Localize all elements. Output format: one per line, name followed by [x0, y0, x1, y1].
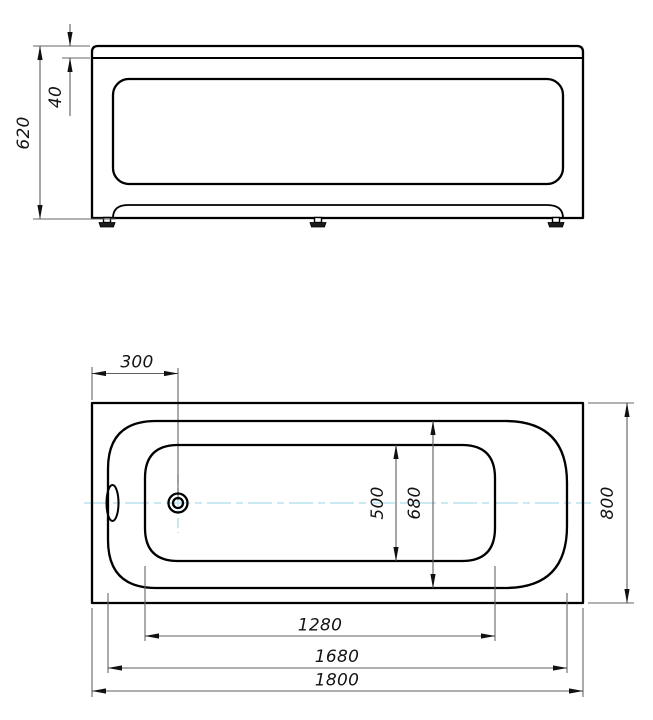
dimension-label-1280: 1280 — [298, 616, 342, 636]
dimension-label-680: 680 — [405, 486, 425, 519]
bathtub-drawing-canvas: 620 40 300 500 — [0, 0, 653, 720]
dimension-overall-height: 620 — [14, 46, 116, 219]
dimension-label-40: 40 — [46, 86, 66, 108]
dimension-drain-offset: 300 — [92, 353, 178, 401]
dimension-label-620: 620 — [14, 116, 34, 149]
dimension-rim-height: 40 — [46, 24, 90, 116]
tub-front-outline — [92, 46, 583, 218]
dimension-label-800: 800 — [598, 486, 618, 519]
dimension-label-300: 300 — [120, 353, 153, 373]
technical-drawing-sheet: 620 40 300 500 — [0, 0, 653, 720]
top-plan-view: 300 500 680 800 1280 — [84, 353, 634, 698]
dimension-overall-width: 800 — [588, 403, 634, 603]
dimension-label-500: 500 — [368, 486, 388, 519]
front-elevation-view: 620 40 — [14, 24, 583, 227]
apron-bottom-edge — [113, 205, 563, 218]
dimension-label-1800: 1800 — [315, 671, 359, 691]
front-apron-panel — [113, 79, 563, 184]
dimension-label-1680: 1680 — [315, 647, 359, 667]
